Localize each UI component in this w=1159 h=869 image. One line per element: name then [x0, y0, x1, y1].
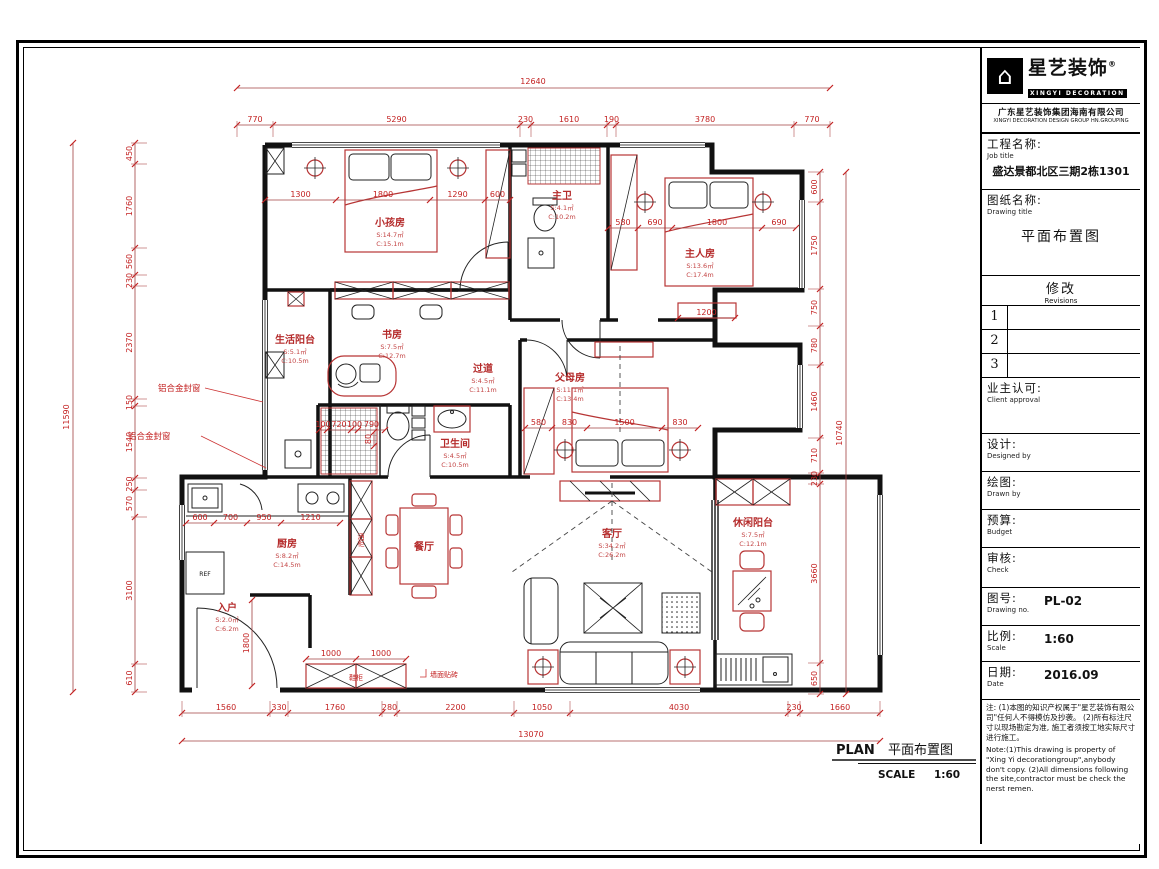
dimension-label: 11590: [62, 404, 71, 429]
dimension-label: 580: [531, 418, 546, 427]
dimension-label: 230: [810, 471, 819, 486]
annotation-leaders: [201, 388, 426, 677]
dimension-label: 1210: [300, 513, 320, 522]
dimension-label: 780: [810, 338, 819, 353]
revisions-header: 修改 Revisions: [982, 276, 1140, 306]
room-perimeter: C:12.1m: [739, 540, 767, 548]
revision-row-2: 2: [982, 330, 1140, 354]
dimension-label: 2370: [125, 332, 134, 352]
company-name: 广东星艺装饰集团海南有限公司 XINGYI DECORATION DESIGN …: [982, 104, 1140, 134]
dimension-label: 830: [672, 418, 687, 427]
room-label: 过道: [473, 362, 493, 375]
dimension-label: 1500: [614, 418, 634, 427]
dimension-label: 950: [256, 513, 271, 522]
field-drawing-title: 图纸名称: Drawing title 平面布置图: [982, 190, 1140, 276]
room-perimeter: C:10.2m: [548, 213, 576, 221]
logo-text-en: XINGYI DECORATION: [1028, 89, 1127, 98]
dimension-label: 560: [125, 254, 134, 269]
room-label: 小孩房: [374, 216, 405, 229]
shoe-cabinet-label: 鞋柜: [349, 673, 363, 682]
dimension-label: 3100: [125, 580, 134, 600]
room-perimeter: C:11.1m: [469, 386, 497, 394]
doors: [197, 242, 600, 688]
room-area: S:14.7㎡: [376, 230, 404, 239]
wine-cabinet-label: 酒柜: [357, 533, 365, 548]
ceiling-light-icon: [304, 157, 326, 179]
field-client-approval: 业主认可: Client approval: [982, 378, 1140, 434]
dimension-label: 710: [810, 448, 819, 463]
dimension-label: 100: [315, 420, 330, 429]
wardrobe-master: [611, 155, 637, 270]
room-perimeter: C:6.2m: [215, 625, 238, 633]
dimension-label: 5290: [386, 115, 406, 124]
dimension-label: 790: [364, 420, 379, 429]
dimension-label: 830: [562, 418, 577, 427]
room-area: S:34.2㎡: [598, 541, 626, 550]
date-value: 2016.09: [1044, 668, 1099, 682]
room-area: S:4.5㎡: [443, 451, 467, 460]
leisure-balcony-furniture: [716, 479, 792, 685]
room-area: S:7.5㎡: [380, 342, 404, 351]
room-area: S:4.5㎡: [471, 376, 495, 385]
revision-row-1: 1: [982, 306, 1140, 330]
ceiling-light-icon: [674, 656, 696, 678]
dimension-label: 600: [490, 190, 505, 199]
dimension-label: 1800: [242, 633, 251, 653]
logo-text-cn: 星艺装饰®: [1028, 53, 1127, 80]
dimension-label: 690: [771, 218, 786, 227]
ceiling-light-icon: [532, 656, 554, 678]
parents-furniture: [524, 342, 668, 474]
dimension-label: 1050: [532, 703, 552, 712]
dimension-label: 150: [125, 395, 134, 410]
dimension-label: 3660: [810, 563, 819, 583]
dimension-label: 600: [810, 179, 819, 194]
ceiling-light-icon: [669, 439, 691, 461]
dimension-label: 700: [223, 513, 238, 522]
plan-title-block: PLAN 平面布置图 SCALE 1:60: [832, 743, 976, 781]
floor-plan: 铝合金封窗 铝合金封窗 墙面贴砖 REF 酒柜 鞋柜 PLAN 平面布置图 SC…: [22, 46, 978, 846]
room-label: 主卫: [552, 189, 572, 202]
dimension-label: 280: [382, 703, 397, 712]
room-label: 休闲阳台: [732, 516, 773, 529]
dimension-label: 570: [125, 496, 134, 511]
drawing-title-value: 平面布置图: [987, 226, 1135, 246]
job-title-value: 盛达景都北区三期2栋1301: [987, 163, 1135, 179]
room-label: 客厅: [601, 527, 622, 540]
room-label: 生活阳台: [275, 333, 315, 346]
dimension-label: 450: [125, 146, 134, 161]
room-perimeter: C:10.5m: [441, 461, 469, 469]
dimension-label: 610: [125, 670, 134, 685]
field-budget: 预算: Budget: [982, 510, 1140, 548]
dimension-label: 1750: [810, 235, 819, 255]
drawing-no-value: PL-02: [1044, 594, 1082, 608]
dimension-label: 1460: [810, 391, 819, 411]
dimension-label: 690: [647, 218, 662, 227]
shower-floor: [528, 148, 600, 184]
dimension-label: 13070: [518, 730, 543, 739]
room-perimeter: C:10.5m: [281, 357, 309, 365]
dimension-label: 1200: [696, 308, 716, 317]
title-block: ⌂ 星艺装饰® XINGYI DECORATION 广东星艺装饰集团海南有限公司…: [980, 48, 1140, 844]
field-drawing-no: 图号: Drawing no. PL-02: [982, 588, 1140, 626]
field-drawn-by: 绘图: Drawn by: [982, 472, 1140, 510]
room-perimeter: C:17.4m: [686, 271, 714, 279]
dimension-label: 750: [810, 300, 819, 315]
dimension-label: 1290: [447, 190, 467, 199]
dimension-label: 1000: [321, 649, 341, 658]
scale-label: SCALE: [878, 769, 915, 781]
scale-block-value: 1:60: [1044, 632, 1074, 646]
notes-en: Note:(1)This drawing is property of "Xin…: [986, 745, 1136, 794]
room-perimeter: C:26.2m: [598, 551, 626, 559]
dimension-label: 3780: [695, 115, 715, 124]
field-job-title: 工程名称: Job title 盛达景都北区三期2栋1301: [982, 134, 1140, 190]
ceiling-light-icon: [752, 191, 774, 213]
dimension-label: 1760: [125, 196, 134, 216]
dimension-label: 770: [804, 115, 819, 124]
dimension-label: 230: [125, 273, 134, 288]
room-label: 入户: [217, 601, 237, 614]
dimension-label: 12640: [520, 77, 545, 86]
notes: 注: (1)本图的知识产权属于"星艺装饰有限公司"任何人不得模仿及抄袭。 (2)…: [982, 700, 1140, 797]
dimension-label: 10740: [835, 420, 844, 445]
dimension-label: 80: [364, 434, 373, 444]
dimension-label: 650: [810, 671, 819, 686]
room-area: S:13.6㎡: [686, 261, 714, 270]
plan-title-en: PLAN: [836, 743, 875, 758]
logo-house-icon: ⌂: [987, 58, 1023, 94]
dimension-label: 230: [518, 115, 533, 124]
room-perimeter: C:12.7m: [378, 352, 406, 360]
room-label: 餐厅: [413, 540, 434, 553]
alu-window-label-2: 铝合金封窗: [128, 431, 171, 442]
room-area: S:8.2㎡: [275, 551, 299, 560]
dimension-label: 100: [347, 420, 362, 429]
dimension-label: 230: [786, 703, 801, 712]
dimension-label: 330: [271, 703, 286, 712]
room-perimeter: C:14.5m: [273, 561, 301, 569]
dimension-label: 1760: [325, 703, 345, 712]
dimension-label: 1610: [559, 115, 579, 124]
wall-tile-label: 墙面贴砖: [430, 670, 458, 679]
room-label: 厨房: [277, 537, 297, 550]
dimension-label: 1000: [371, 649, 391, 658]
dimension-label: 190: [604, 115, 619, 124]
dimension-label: 1540: [125, 432, 134, 452]
dimension-label: 250: [125, 476, 134, 491]
plan-title-cn: 平面布置图: [888, 743, 953, 758]
dimension-label: 600: [192, 513, 207, 522]
room-area: S:5.1㎡: [283, 347, 307, 356]
field-check: 审核: Check: [982, 548, 1140, 588]
alu-window-label-1: 铝合金封窗: [158, 383, 201, 394]
balcony-basin: [285, 440, 311, 468]
field-scale: 比例: Scale 1:60: [982, 626, 1140, 662]
dimension-label: 580: [615, 218, 630, 227]
room-area: S:11.1㎡: [556, 385, 584, 394]
room-perimeter: C:13.4m: [556, 395, 584, 403]
mat: [662, 593, 700, 633]
ceiling-light-icon: [554, 439, 576, 461]
room-label: 父母房: [554, 371, 585, 384]
room-label: 书房: [382, 328, 402, 341]
dimension-label: 1300: [290, 190, 310, 199]
room-label: 卫生间: [440, 437, 470, 450]
room-perimeter: C:15.1m: [376, 240, 404, 248]
dimension-label: 720: [331, 420, 346, 429]
field-designed-by: 设计: Designed by: [982, 434, 1140, 472]
dimension-label: 4030: [669, 703, 689, 712]
room-label: 主人房: [685, 247, 715, 260]
dimension-label: 770: [247, 115, 262, 124]
room-area: S:7.5㎡: [741, 530, 765, 539]
field-date: 日期: Date 2016.09: [982, 662, 1140, 700]
room-area: S:4.1㎡: [550, 203, 574, 212]
dimension-label: 1560: [216, 703, 236, 712]
company-logo: ⌂ 星艺装饰® XINGYI DECORATION: [982, 48, 1140, 104]
drawing-sheet: { "sheet": { "plan_title_en": "PLAN", "p…: [0, 0, 1159, 869]
scale-value: 1:60: [934, 769, 960, 781]
dimension-label: 1660: [830, 703, 850, 712]
dimension-label: 1800: [707, 218, 727, 227]
notes-cn: 注: (1)本图的知识产权属于"星艺装饰有限公司"任何人不得模仿及抄袭。 (2)…: [986, 703, 1136, 743]
living-furniture: [512, 481, 712, 684]
fridge-label: REF: [199, 571, 211, 578]
revision-row-3: 3: [982, 354, 1140, 378]
dimension-label: 2200: [445, 703, 465, 712]
ceiling-light-icon: [447, 157, 469, 179]
dimension-label: 1800: [373, 190, 393, 199]
room-area: S:2.0㎡: [215, 615, 239, 624]
